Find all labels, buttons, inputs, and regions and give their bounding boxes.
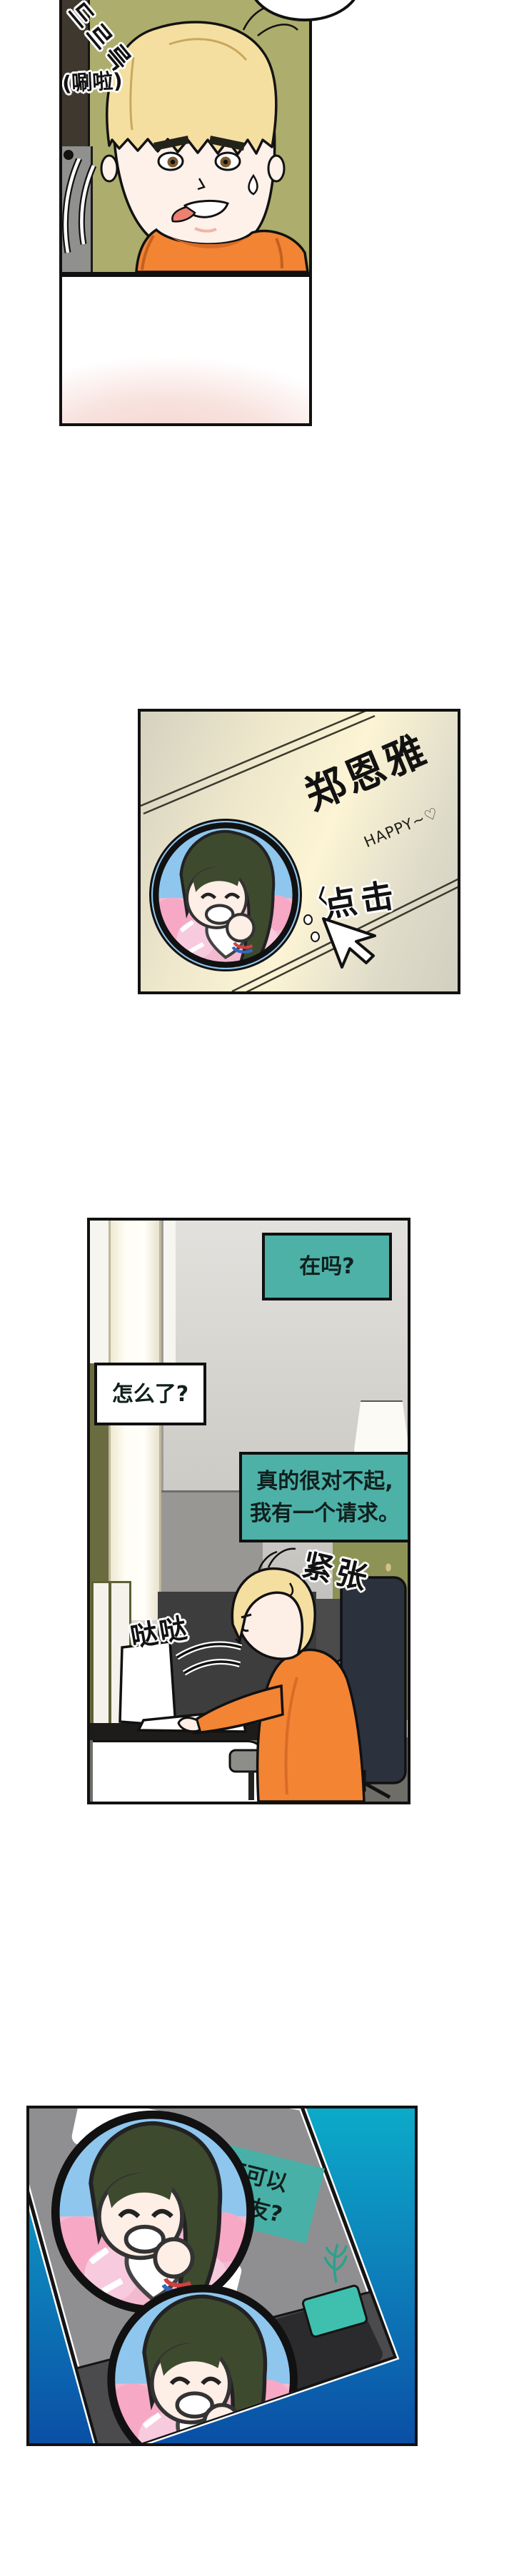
- sparkle-dot: [303, 914, 313, 925]
- comic-panel-blank: [59, 275, 312, 426]
- chat-bubble-incoming-1: 在吗?: [262, 1233, 392, 1300]
- chat-bubble-reply: 怎么了?: [94, 1363, 206, 1425]
- chat-text: 真的很对不起,: [256, 1465, 393, 1497]
- comic-panel-chat-scene: 哒哒 紧张 在吗? 怎么了? 真的很对不起, 我有一个请求。: [87, 1218, 410, 1804]
- sfx-door-translation: (唰啦): [61, 64, 124, 97]
- phone-art: 周末你可不可以 假装我女朋友? 你疯了吗? 喝醉了吗?: [29, 2108, 415, 2443]
- motion-lines: [59, 158, 96, 258]
- avatar-woman: [149, 819, 302, 971]
- comic-panel-phone: 周末你可不可以 假装我女朋友? 你疯了吗? 喝醉了吗?: [26, 2106, 418, 2446]
- comic-panel-profile: 郑恩雅 HAPPY~♡ 〈 点击: [138, 709, 460, 994]
- webtoon-page: 드르륵 (唰啦) 郑恩雅 HAPPY~♡ 〈 点击: [0, 0, 514, 2576]
- cursor-icon: [318, 914, 386, 983]
- chat-text: 我有一个请求。: [250, 1497, 400, 1530]
- chat-text: 在吗?: [299, 1251, 354, 1283]
- comic-panel-closeup: 드르륵 (唰啦): [59, 0, 312, 275]
- chat-bubble-incoming-2: 真的很对不起, 我有一个请求。: [239, 1452, 410, 1542]
- chat-text: 怎么了?: [112, 1378, 188, 1410]
